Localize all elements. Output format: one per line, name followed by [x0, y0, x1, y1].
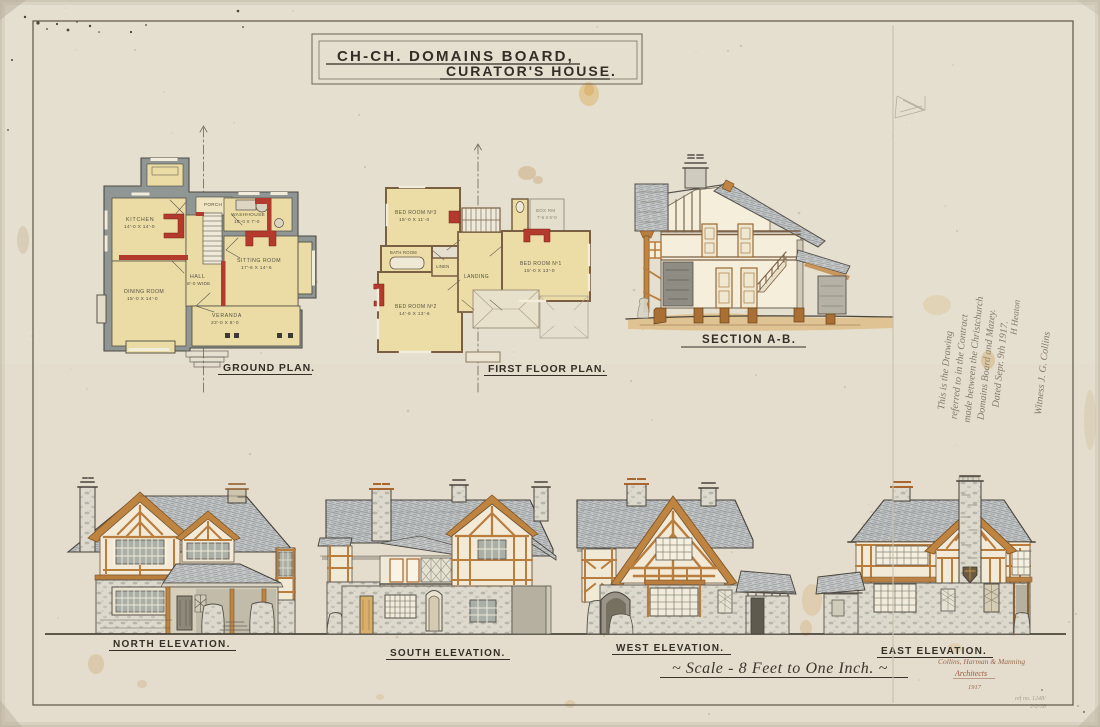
svg-text:FIRST FLOOR PLAN.: FIRST FLOOR PLAN.	[488, 363, 606, 375]
svg-text:7'-6 X 6'-0: 7'-6 X 6'-0	[537, 215, 557, 220]
svg-text:8'-0 WIDE: 8'-0 WIDE	[187, 281, 211, 287]
svg-text:BED ROOM Nº1: BED ROOM Nº1	[520, 261, 562, 267]
svg-text:LANDING: LANDING	[464, 274, 489, 280]
svg-text:14'-0 X 14'-0: 14'-0 X 14'-0	[124, 224, 155, 230]
svg-text:BATH ROOM: BATH ROOM	[390, 250, 417, 255]
svg-text:EAST ELEVATION.: EAST ELEVATION.	[881, 646, 987, 657]
svg-text:1917: 1917	[968, 684, 982, 691]
svg-text:WEST ELEVATION.: WEST ELEVATION.	[616, 643, 724, 654]
svg-text:15'-0 X 11'-0: 15'-0 X 11'-0	[399, 217, 429, 223]
svg-text:10'-0 X 7'-0: 10'-0 X 7'-0	[234, 219, 260, 224]
svg-text:Collins, Harman & Manning: Collins, Harman & Manning	[938, 657, 1025, 666]
svg-text:BOX RM: BOX RM	[536, 208, 555, 213]
svg-text:BED ROOM Nº2: BED ROOM Nº2	[395, 304, 437, 310]
svg-text:WASHHOUSE: WASHHOUSE	[231, 212, 265, 218]
svg-text:VERANDA: VERANDA	[212, 313, 242, 319]
svg-text:ref no. 1248/: ref no. 1248/	[1015, 695, 1047, 702]
svg-text:SITTING ROOM: SITTING ROOM	[237, 258, 281, 264]
svg-text:~ Scale - 8 Feet to One Inch.: ~ Scale - 8 Feet to One Inch. ~	[672, 660, 888, 677]
svg-text:SECTION A-B.: SECTION A-B.	[702, 334, 796, 346]
svg-text:CURATOR'S HOUSE.: CURATOR'S HOUSE.	[446, 63, 617, 79]
svg-text:DINING ROOM: DINING ROOM	[124, 289, 164, 295]
svg-text:HALL: HALL	[190, 274, 205, 280]
svg-text:14'-6 X 13'-6: 14'-6 X 13'-6	[399, 311, 430, 317]
svg-text:15'-0 X 14'-0: 15'-0 X 14'-0	[127, 296, 158, 302]
svg-text:SOUTH ELEVATION.: SOUTH ELEVATION.	[390, 648, 506, 659]
svg-text:Architects: Architects	[954, 669, 987, 678]
svg-text:PORCH: PORCH	[204, 202, 222, 207]
svg-text:LINEN: LINEN	[436, 264, 449, 269]
svg-text:23'-0 X 8'-0: 23'-0 X 8'-0	[211, 320, 239, 326]
svg-text:KITCHEN: KITCHEN	[126, 217, 154, 223]
svg-text:17'-6 X 14'-6: 17'-6 X 14'-6	[241, 265, 272, 271]
svg-text:NORTH ELEVATION.: NORTH ELEVATION.	[113, 639, 231, 650]
svg-text:GROUND PLAN.: GROUND PLAN.	[223, 362, 315, 374]
svg-text:BED ROOM Nº3: BED ROOM Nº3	[395, 210, 437, 216]
svg-text:15'-0 X 13'-0: 15'-0 X 13'-0	[524, 268, 555, 274]
